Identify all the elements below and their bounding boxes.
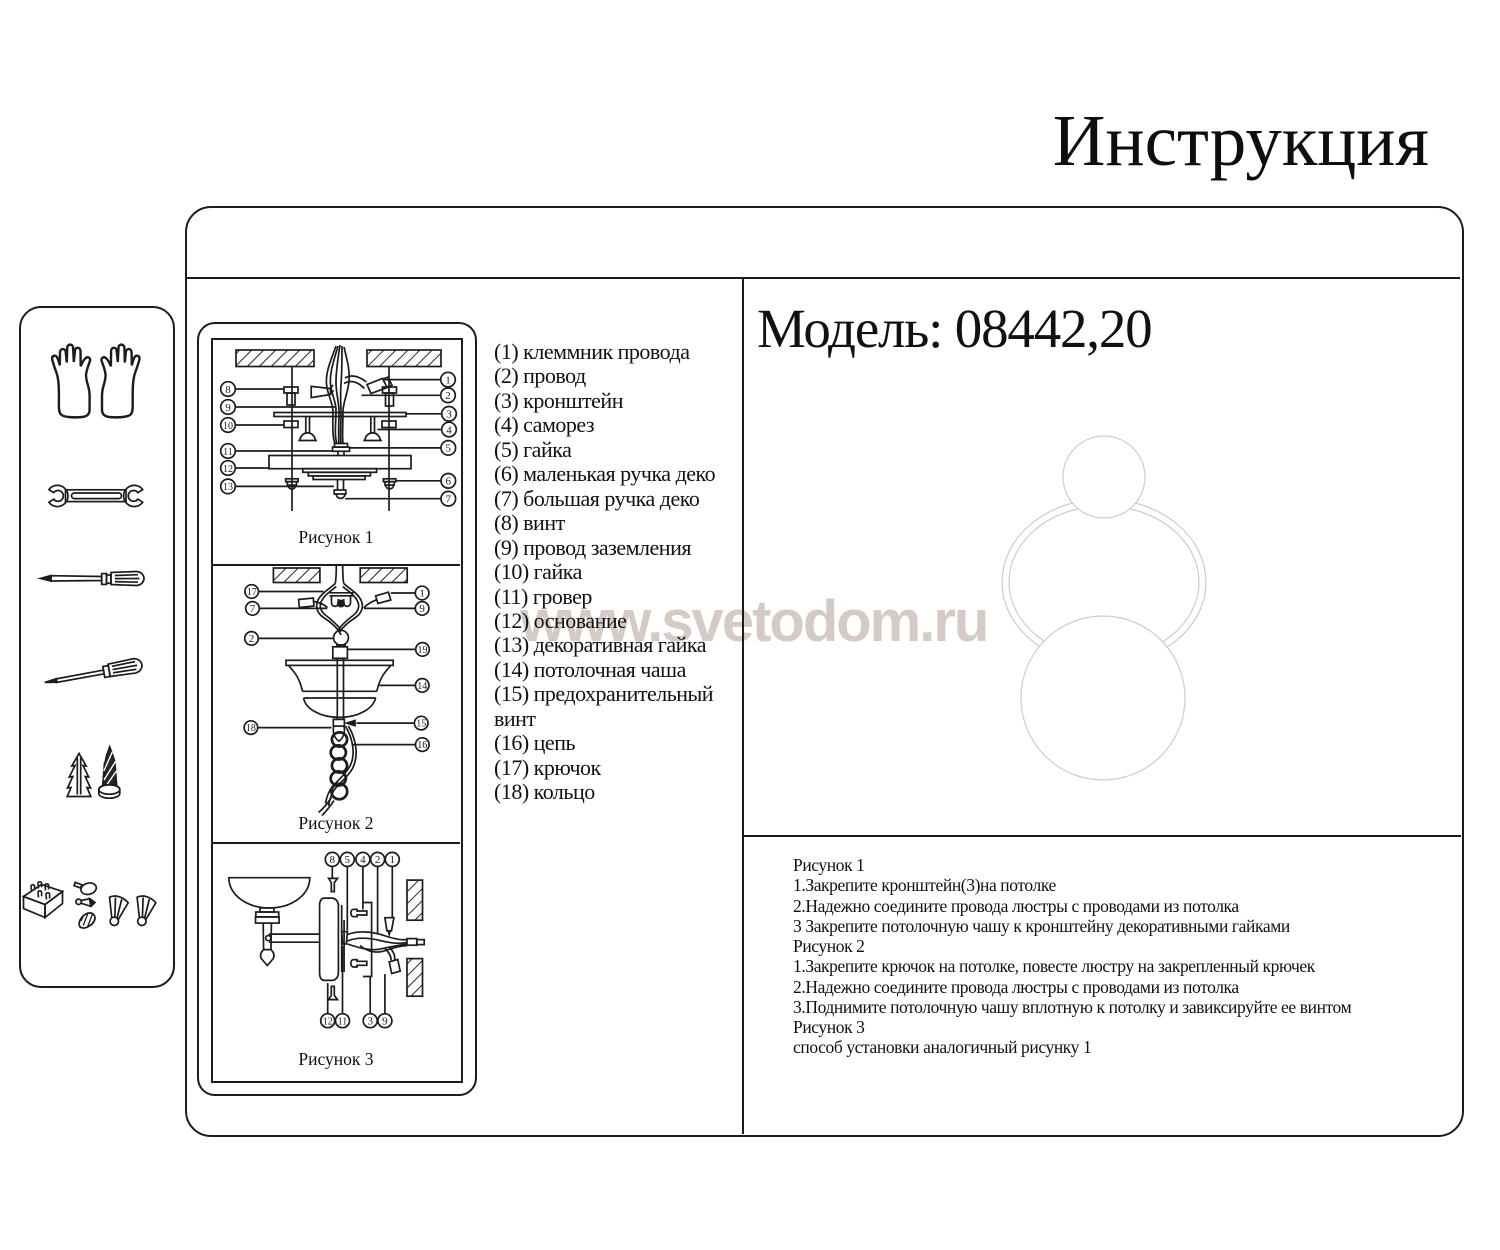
svg-text:11: 11	[338, 1017, 348, 1028]
svg-text:6: 6	[446, 476, 452, 488]
svg-text:4: 4	[446, 424, 452, 436]
svg-text:1: 1	[390, 854, 396, 866]
svg-text:9: 9	[419, 603, 425, 615]
svg-text:13: 13	[223, 482, 233, 493]
svg-text:3: 3	[367, 1016, 373, 1028]
svg-text:9: 9	[225, 402, 231, 414]
svg-text:1: 1	[419, 587, 425, 599]
svg-text:10: 10	[223, 421, 233, 432]
svg-text:11: 11	[223, 447, 233, 458]
svg-text:16: 16	[417, 740, 427, 751]
svg-text:5: 5	[345, 854, 351, 866]
svg-text:4: 4	[360, 854, 366, 866]
svg-text:2: 2	[375, 854, 381, 866]
svg-text:2: 2	[249, 633, 255, 645]
svg-text:15: 15	[416, 719, 426, 730]
svg-text:18: 18	[246, 723, 256, 734]
svg-text:7: 7	[446, 494, 452, 506]
svg-text:17: 17	[247, 587, 257, 598]
svg-text:5: 5	[446, 443, 452, 455]
svg-text:3: 3	[446, 409, 452, 421]
svg-text:12: 12	[323, 1017, 333, 1028]
svg-text:19: 19	[418, 645, 428, 656]
svg-text:9: 9	[382, 1016, 388, 1028]
svg-text:1: 1	[445, 374, 451, 386]
svg-text:12: 12	[223, 464, 233, 475]
svg-text:8: 8	[330, 854, 336, 866]
svg-text:7: 7	[250, 603, 256, 615]
svg-text:2: 2	[445, 390, 451, 402]
svg-text:14: 14	[417, 681, 427, 692]
svg-text:8: 8	[225, 384, 231, 396]
